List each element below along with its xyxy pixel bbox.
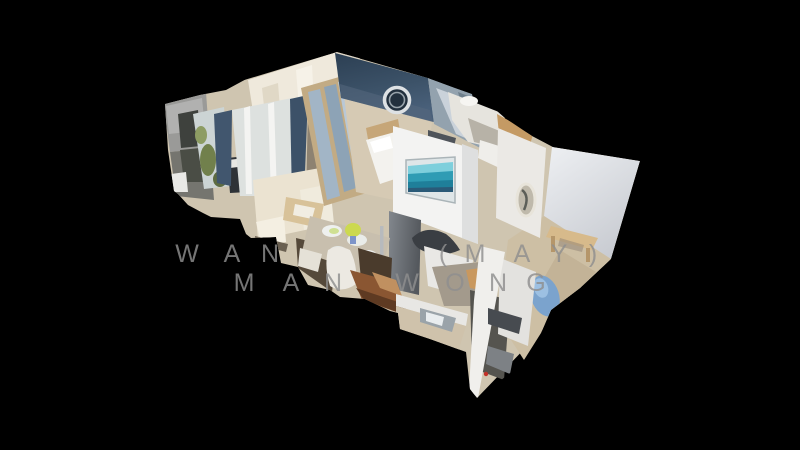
svg-text:N: N xyxy=(261,240,279,268)
svg-text:A: A xyxy=(283,269,300,297)
svg-text:Y: Y xyxy=(551,240,568,268)
svg-text:(: ( xyxy=(439,240,448,268)
svg-text:G: G xyxy=(526,269,545,297)
svg-text:W: W xyxy=(395,269,419,297)
svg-text:A: A xyxy=(514,240,531,268)
svg-text:W: W xyxy=(175,240,199,268)
svg-text:): ) xyxy=(589,240,597,268)
svg-text:A: A xyxy=(224,240,241,268)
svg-text:M: M xyxy=(234,269,255,297)
svg-text:N: N xyxy=(324,269,342,297)
svg-text:N: N xyxy=(489,269,507,297)
svg-text:O: O xyxy=(445,269,464,297)
svg-text:M: M xyxy=(465,240,486,268)
